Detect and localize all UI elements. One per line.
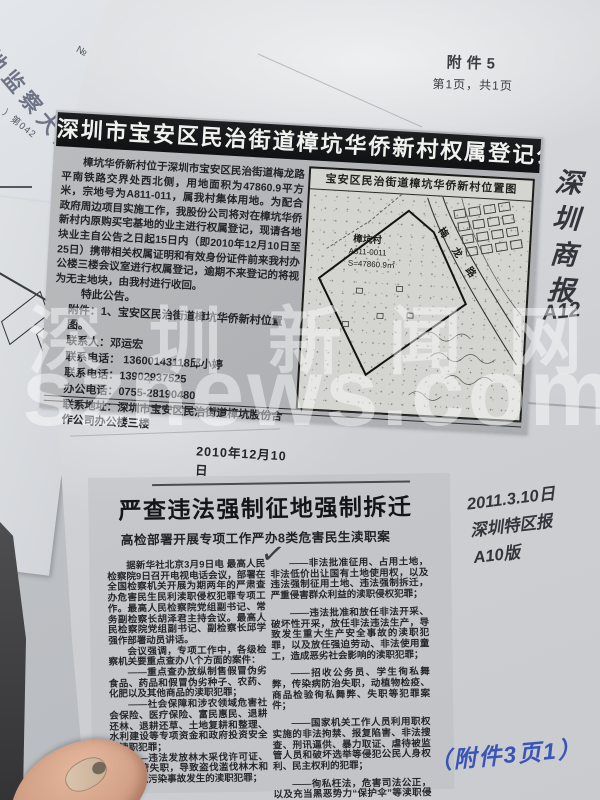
notice-clipping: 深圳市宝安区民治街道樟坑华侨新村权属登记公告 樟坑华侨新村位于深圳市宝安区民治街… [39, 110, 543, 435]
map-svg: 樟坑村 A811-0011 S=47860.9㎡ 梅龙路 [298, 189, 528, 415]
article-paragraph: ——徇私枉法，危害司法公正，以及充当黑恶势力“保护伞”等渎职侵权犯罪。 [273, 778, 431, 800]
article-right-column: ——非法批准征用、占用土地，非法低价出让国有土地使用权，以及违法强制征用土地、违… [270, 557, 432, 800]
location-map: 宝安区民治街道樟坑华侨新村位置图 [296, 166, 535, 422]
attachment-header: 附件5 第1页，共1页 [407, 50, 538, 94]
article-clipping: 严查违法强制征地强制拆迁 高检部署开展专项工作严办8类危害民生渎职案 ✓ 据新华… [88, 473, 454, 794]
photo-of-document: 土地监察大队 № ）第042 附件5 第1页，共1页 深圳市宝安区民治街道樟坑华… [0, 0, 600, 800]
handwriting-notice-page: A12 [541, 298, 582, 326]
map-drawing: 樟坑村 A811-0011 S=47860.9㎡ 梅龙路 [298, 189, 532, 415]
notice-body-area: 樟坑华侨新村位于深圳市宝安区民治街道梅龙路平南铁路交界处西北侧，用地面积为478… [40, 146, 542, 431]
map-parcel-label: A811-0011 [348, 247, 387, 258]
article-top-rule [152, 481, 410, 486]
article-paragraph: 据新华社北京3月9日电 最高人民检察院9日召开电视电话会议，部署在全国检察机关开… [107, 560, 266, 648]
article-paragraph: ——社会保障和涉农领域危害社会保险、医疗保险、富民惠民、退耕还林、退耕还草、土地… [109, 699, 268, 755]
article-paragraph: ——违法批准和放任非法开采、破坏性开采，放任非法违法生产，导致发生重大生产安全事… [271, 607, 430, 663]
article-subhead: 高检部署开展专项工作严办8类危害民生渎职案 [121, 526, 391, 549]
article-paragraph: ——非法批准征用、占用土地，非法低价出让国有土地使用权，以及违法强制征用土地、违… [270, 557, 429, 602]
article-paragraph: ——国家机关工作人员利用职权实施的非法拘禁、报复陷害、非法搜查、刑讯逼供、暴力取… [272, 717, 431, 773]
notice-text-column: 樟坑华侨新村位于深圳市宝安区民治街道梅龙路平南铁路交界处西北侧，用地面积为478… [45, 154, 305, 483]
handwriting-article-source: 2011.3.10日 深圳特区报 A10版 [465, 481, 563, 572]
page-indicator: 第1页，共1页 [407, 74, 537, 94]
underlay-mark-line [0, 186, 32, 188]
map-village-label: 樟坑村 [352, 233, 383, 247]
notice-body-text: 樟坑华侨新村位于深圳市宝安区民治街道梅龙路平南铁路交界处西北侧，用地面积为478… [55, 154, 305, 299]
map-road-label: 梅龙路 [435, 225, 487, 292]
attachment-label: 附件5 [408, 50, 539, 74]
article-paragraph: ——招收公务员、学生徇私舞弊，传染病防治失职，动植物检疫、商品检验徇私舞弊、失职… [272, 668, 431, 713]
map-area-label: S=47860.9㎡ [348, 259, 395, 271]
article-headline: 严查违法强制征地强制拆迁 [118, 487, 412, 525]
article-paragraph: ——重点查办放纵制售假冒伪劣食品、药品和假冒伪劣种子、农药、化肥以及其他商品的渎… [109, 667, 267, 701]
